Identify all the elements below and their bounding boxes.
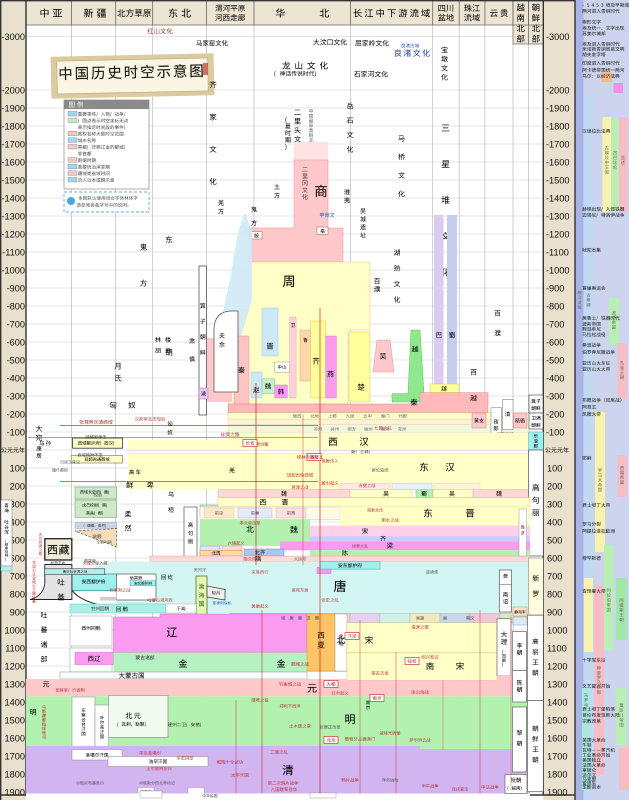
- svg-text:-200: -200: [7, 409, 25, 419]
- svg-text:-300: -300: [7, 391, 25, 401]
- svg-text:-1500: -1500: [546, 175, 570, 185]
- svg-text:-1900: -1900: [2, 103, 26, 113]
- svg-text:100: 100: [10, 463, 25, 473]
- svg-text:100: 100: [547, 463, 562, 473]
- svg-text:1900: 1900: [5, 787, 25, 797]
- svg-text:1000: 1000: [547, 625, 567, 635]
- svg-text:-1200: -1200: [546, 229, 570, 239]
- svg-text:-600: -600: [7, 337, 25, 347]
- svg-text:-1400: -1400: [2, 193, 26, 203]
- svg-text:-1600: -1600: [546, 157, 570, 167]
- svg-text:-500: -500: [7, 355, 25, 365]
- svg-text:600: 600: [547, 553, 562, 563]
- svg-text:1100: 1100: [5, 643, 25, 653]
- svg-text:-500: -500: [546, 355, 564, 365]
- svg-text:800: 800: [547, 589, 562, 599]
- svg-text:1400: 1400: [547, 697, 567, 707]
- svg-text:1200: 1200: [5, 661, 25, 671]
- svg-text:1800: 1800: [5, 769, 25, 779]
- svg-text:-800: -800: [546, 301, 564, 311]
- svg-text:-1000: -1000: [546, 265, 570, 275]
- svg-text:1300: 1300: [547, 679, 567, 689]
- svg-text:-1200: -1200: [2, 229, 26, 239]
- svg-text:1100: 1100: [547, 643, 567, 653]
- svg-text:300: 300: [547, 499, 562, 509]
- svg-text:-2000: -2000: [546, 85, 570, 95]
- svg-text:1500: 1500: [547, 715, 567, 725]
- svg-text:-1800: -1800: [2, 121, 26, 131]
- svg-text:700: 700: [547, 571, 562, 581]
- svg-text:1900: 1900: [547, 787, 567, 797]
- svg-text:-1700: -1700: [2, 139, 26, 149]
- svg-text:-1400: -1400: [546, 193, 570, 203]
- svg-text:-400: -400: [7, 373, 25, 383]
- svg-text:700: 700: [10, 571, 25, 581]
- svg-text:-1800: -1800: [546, 121, 570, 131]
- svg-text:-400: -400: [546, 373, 564, 383]
- svg-text:-1100: -1100: [546, 247, 569, 257]
- svg-text:-800: -800: [7, 301, 25, 311]
- svg-text:200: 200: [10, 481, 25, 491]
- svg-text:-1300: -1300: [546, 211, 570, 221]
- svg-text:900: 900: [547, 607, 562, 617]
- svg-text:-700: -700: [7, 319, 25, 329]
- svg-text:-300: -300: [546, 391, 564, 401]
- svg-text:1600: 1600: [5, 733, 25, 743]
- svg-text:-700: -700: [546, 319, 564, 329]
- svg-text:1200: 1200: [547, 661, 567, 671]
- svg-text:1500: 1500: [5, 715, 25, 725]
- svg-text:-1600: -1600: [2, 157, 26, 167]
- svg-text:1700: 1700: [5, 751, 25, 761]
- svg-text:-600: -600: [546, 337, 564, 347]
- svg-text:-100: -100: [7, 427, 25, 437]
- svg-text:800: 800: [10, 589, 25, 599]
- svg-text:-3000: -3000: [546, 32, 570, 42]
- svg-text:-1300: -1300: [2, 211, 26, 221]
- svg-text:-1000: -1000: [2, 265, 26, 275]
- svg-text:200: 200: [547, 481, 562, 491]
- svg-text:1300: 1300: [5, 679, 25, 689]
- svg-text:1800: 1800: [547, 769, 567, 779]
- svg-text:1400: 1400: [5, 697, 25, 707]
- svg-text:500: 500: [547, 535, 562, 545]
- svg-text:-1700: -1700: [546, 139, 570, 149]
- svg-text:900: 900: [10, 607, 25, 617]
- svg-text:400: 400: [547, 517, 562, 527]
- svg-text:1000: 1000: [5, 625, 25, 635]
- svg-text:-100: -100: [546, 427, 564, 437]
- svg-text:-900: -900: [7, 283, 25, 293]
- svg-text:-1100: -1100: [2, 247, 25, 257]
- svg-text:-1900: -1900: [546, 103, 570, 113]
- svg-text:1700: 1700: [547, 751, 567, 761]
- svg-text:-200: -200: [546, 409, 564, 419]
- svg-text:-900: -900: [546, 283, 564, 293]
- svg-text:-1500: -1500: [2, 175, 26, 185]
- svg-text:-2000: -2000: [2, 85, 26, 95]
- svg-text:-3000: -3000: [2, 32, 26, 42]
- svg-text:1600: 1600: [547, 733, 567, 743]
